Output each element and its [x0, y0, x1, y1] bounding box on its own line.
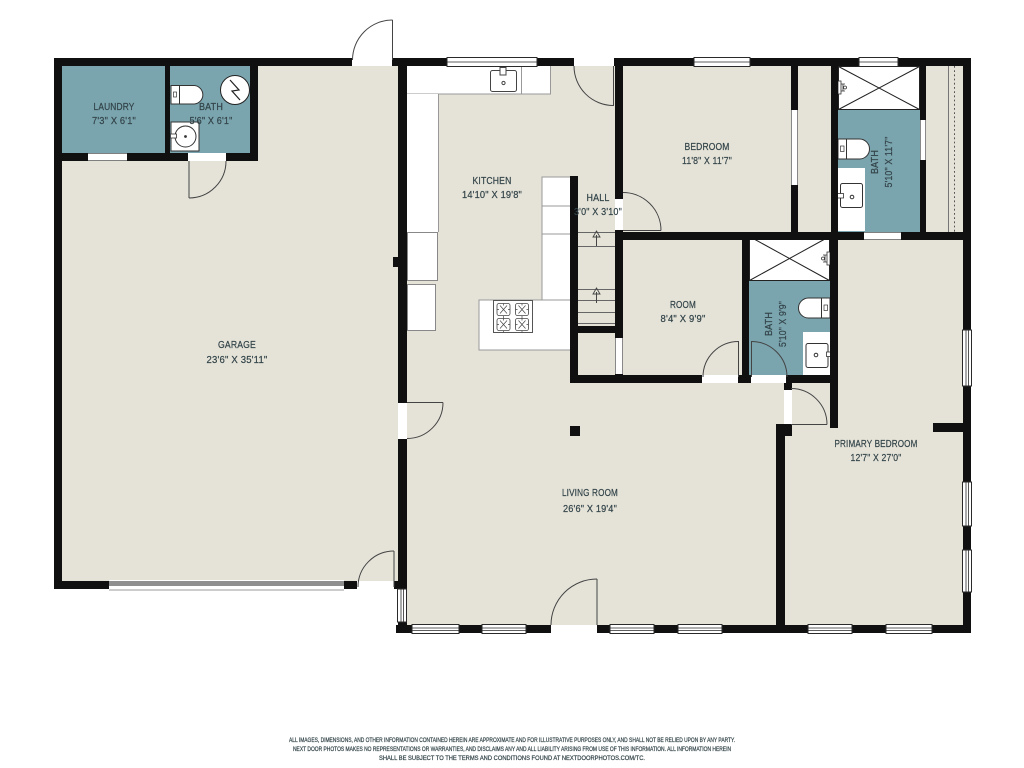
svg-text:BEDROOM: BEDROOM — [685, 141, 730, 153]
svg-text:PRIMARY BEDROOM: PRIMARY BEDROOM — [835, 438, 918, 450]
svg-text:HALL: HALL — [587, 192, 610, 204]
svg-text:12'7" X 27'0": 12'7" X 27'0" — [851, 452, 902, 464]
svg-text:26'6" X 19'4": 26'6" X 19'4" — [563, 503, 617, 515]
svg-text:BATH: BATH — [869, 150, 881, 174]
svg-text:11'8" X 11'7": 11'8" X 11'7" — [682, 155, 732, 167]
svg-text:ROOM: ROOM — [670, 299, 696, 311]
svg-text:SHALL BE SUBJECT TO THE TERMS: SHALL BE SUBJECT TO THE TERMS AND CONDIT… — [379, 755, 645, 762]
svg-text:5'6" X 6'1": 5'6" X 6'1" — [190, 115, 233, 127]
svg-text:GARAGE: GARAGE — [218, 339, 256, 351]
svg-text:LAUNDRY: LAUNDRY — [94, 101, 135, 113]
svg-text:5'10" X 9'9": 5'10" X 9'9" — [777, 301, 789, 347]
svg-text:5'10" X 11'7": 5'10" X 11'7" — [883, 136, 895, 187]
svg-text:23'6" X 35'11": 23'6" X 35'11" — [207, 354, 268, 366]
svg-text:3'0" X 3'10": 3'0" X 3'10" — [574, 206, 622, 218]
svg-text:BATH: BATH — [199, 101, 223, 113]
svg-text:14'10" X 19'8": 14'10" X 19'8" — [462, 189, 522, 201]
svg-text:NEXT DOOR PHOTOS MAKES NO REPR: NEXT DOOR PHOTOS MAKES NO REPRESENTATION… — [293, 746, 731, 753]
svg-text:KITCHEN: KITCHEN — [473, 175, 512, 187]
svg-text:7'3" X 6'1": 7'3" X 6'1" — [92, 115, 136, 127]
svg-text:8'4" X 9'9": 8'4" X 9'9" — [661, 313, 706, 325]
svg-text:LIVING ROOM: LIVING ROOM — [562, 487, 618, 499]
svg-text:BATH: BATH — [763, 312, 775, 336]
svg-text:ALL IMAGES, DIMENSIONS, AND OT: ALL IMAGES, DIMENSIONS, AND OTHER INFORM… — [289, 737, 735, 744]
